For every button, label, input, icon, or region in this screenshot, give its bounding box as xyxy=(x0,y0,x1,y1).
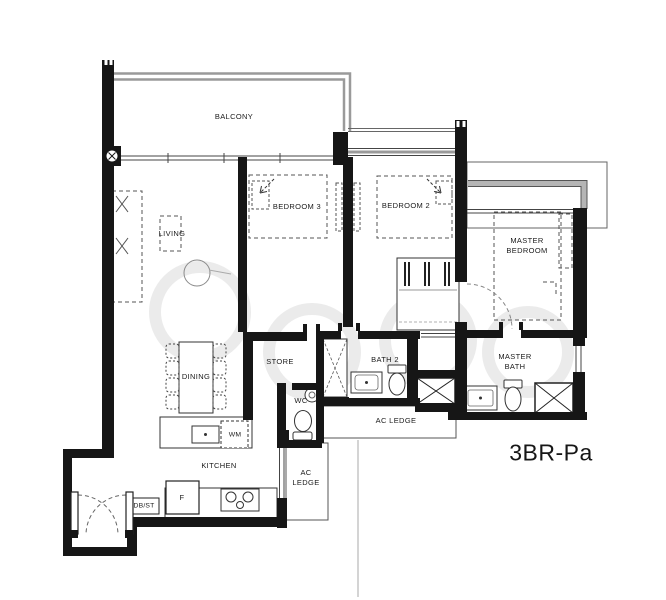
room-label-master-bedroom: MASTER BEDROOM xyxy=(506,236,547,256)
room-label-living: LIVING xyxy=(159,229,186,239)
master-bay-window xyxy=(468,181,587,210)
toilet-wc xyxy=(295,411,312,432)
room-label-kitchen: KITCHEN xyxy=(201,461,236,471)
living-window xyxy=(114,153,333,163)
room-label-store: STORE xyxy=(266,357,293,367)
room-label-dining: DINING xyxy=(182,372,210,382)
stove-icon xyxy=(221,489,259,511)
room-label-ac-ledge-kitchen: AC LEDGE xyxy=(292,468,319,488)
room-label-balcony: BALCONY xyxy=(215,112,253,122)
balcony-railing xyxy=(114,74,350,132)
sink-master-bath xyxy=(464,386,497,410)
room-label-master-bath: MASTER BATH xyxy=(498,352,531,372)
room-label-wc: WC xyxy=(294,396,307,406)
toilet-master-bath xyxy=(504,380,522,411)
ac-ledge-window xyxy=(280,443,285,498)
entrance-door xyxy=(70,492,133,538)
sink-bath2 xyxy=(351,372,382,393)
wardrobe-bedroom3 xyxy=(336,183,342,231)
floor-plan: BALCONY LIVING DINING KITCHEN BEDROOM 3 … xyxy=(0,0,666,600)
room-label-bath2: BATH 2 xyxy=(371,355,399,365)
wall-notches xyxy=(105,58,466,127)
bedroom-window xyxy=(348,129,457,156)
fixture-label-wm: WM xyxy=(229,430,241,439)
shower-bath2 xyxy=(323,339,347,397)
x-ledge xyxy=(417,378,455,404)
toilet-bath2 xyxy=(388,365,406,395)
floor-plan-drawing xyxy=(0,0,666,600)
master-bath-window xyxy=(576,346,581,372)
master-bath-fixtures xyxy=(464,380,573,413)
bath2-fixtures xyxy=(323,339,406,397)
room-label-ac-ledge-mid: AC LEDGE xyxy=(376,416,417,426)
wardrobe-strip-bedroom2 xyxy=(354,183,360,231)
plan-code: 3BR-Pa xyxy=(509,440,593,465)
fixture-label-db-st: DB/ST xyxy=(133,501,154,510)
room-label-bedroom3: BEDROOM 3 xyxy=(273,202,321,212)
wardrobe-bedroom2 xyxy=(397,258,459,330)
x-ledge-window xyxy=(421,334,455,338)
room-label-bedroom2: BEDROOM 2 xyxy=(382,201,430,211)
tv-console xyxy=(112,191,142,302)
fixture-label-fridge: F xyxy=(180,493,185,503)
shower-master-bath xyxy=(535,383,573,413)
utility-symbol xyxy=(103,146,121,166)
